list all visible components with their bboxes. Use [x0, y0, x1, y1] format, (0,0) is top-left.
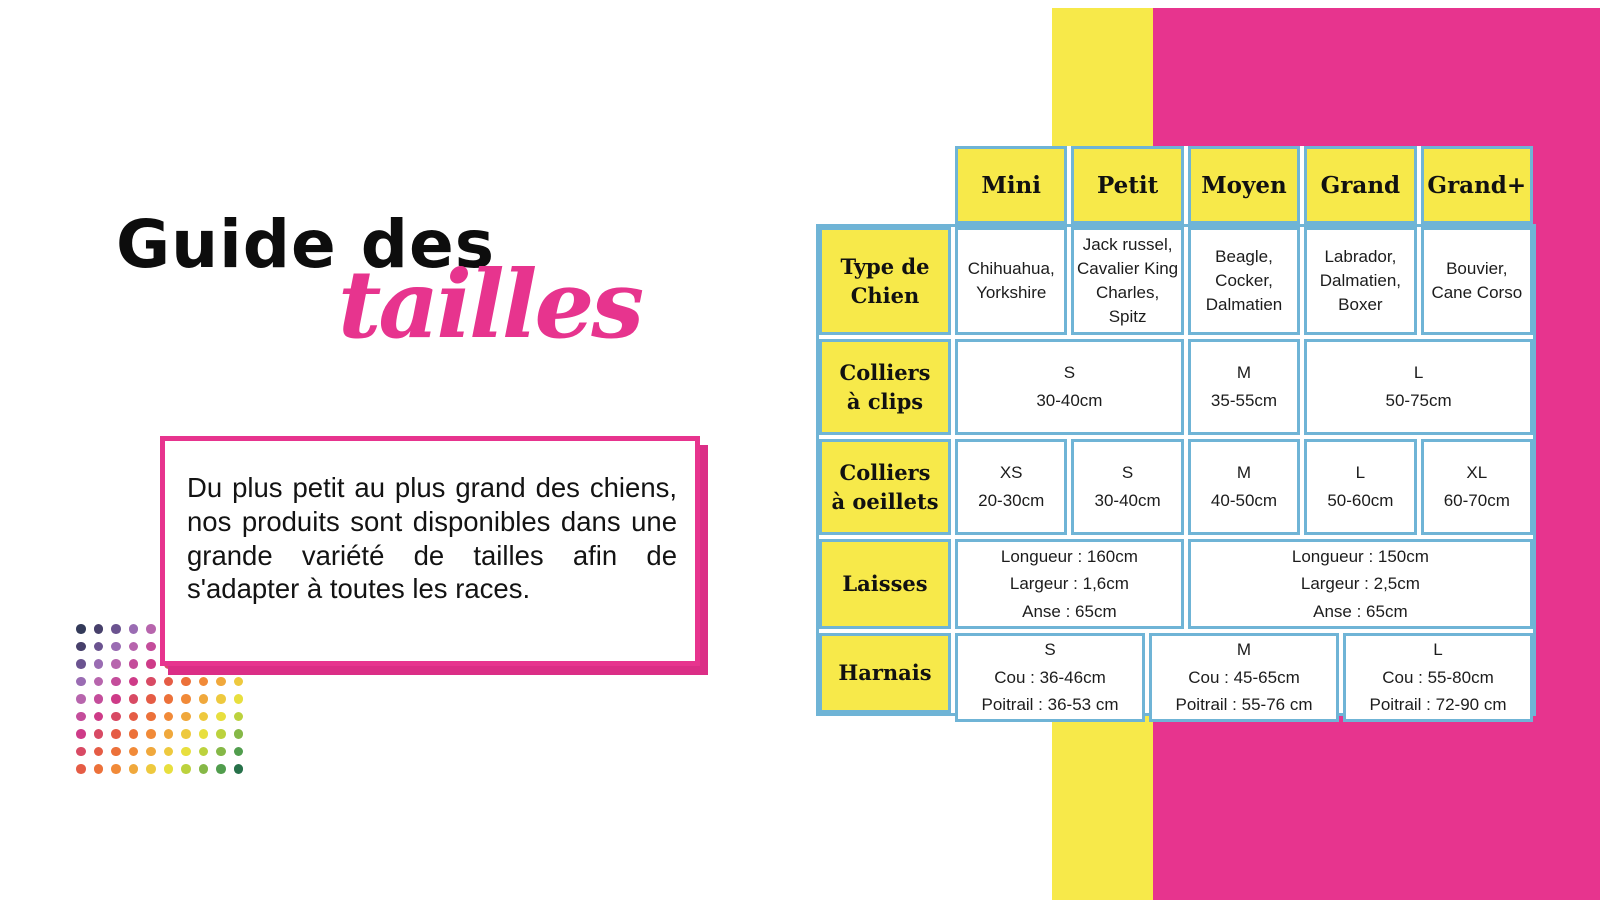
dot — [76, 642, 86, 652]
cell-oeillets-l: L 50-60cm — [1304, 439, 1416, 535]
dot — [111, 642, 121, 652]
row-label-harnais: Harnais — [819, 633, 951, 713]
dot — [234, 694, 244, 704]
dot — [94, 677, 104, 687]
dot — [111, 677, 121, 687]
dot — [76, 764, 86, 774]
dot — [181, 764, 191, 774]
cell-clips-l: L 50-75cm — [1304, 339, 1533, 435]
dot — [129, 729, 139, 739]
col-header-grand-plus: Grand+ — [1421, 146, 1533, 224]
dot — [129, 659, 139, 669]
dot — [76, 729, 86, 739]
dot — [146, 694, 156, 704]
size-guide-page: Guide des tailles Du plus petit au plus … — [0, 0, 1600, 900]
dot — [181, 694, 191, 704]
row-label-laisses: Laisses — [819, 539, 951, 629]
cell-chien-mini: Chihuahua, Yorkshire — [955, 227, 1067, 335]
dot — [111, 694, 121, 704]
dot — [111, 729, 121, 739]
dot — [164, 747, 174, 757]
col-header-petit: Petit — [1071, 146, 1183, 224]
dot — [146, 642, 156, 652]
dot — [94, 624, 104, 634]
cell-chien-grand: Labrador, Dalmatien, Boxer — [1304, 227, 1416, 335]
cell-chien-grand-plus: Bouvier, Cane Corso — [1421, 227, 1533, 335]
dot — [164, 694, 174, 704]
dot — [146, 677, 156, 687]
cell-clips-m: M 35-55cm — [1188, 339, 1300, 435]
dot — [216, 729, 226, 739]
dot — [199, 712, 209, 722]
dot — [76, 712, 86, 722]
col-header-mini: Mini — [955, 146, 1067, 224]
dot — [94, 694, 104, 704]
cell-laisses-petites-tailles: Longueur : 160cm Largeur : 1,6cm Anse : … — [955, 539, 1184, 629]
dot — [111, 712, 121, 722]
dot — [234, 747, 244, 757]
cell-oeillets-s: S 30-40cm — [1071, 439, 1183, 535]
dot — [146, 659, 156, 669]
dot — [164, 764, 174, 774]
dot — [181, 729, 191, 739]
dot — [216, 712, 226, 722]
cell-chien-petit: Jack russel, Cavalier King Charles, Spit… — [1071, 227, 1183, 335]
dot — [111, 747, 121, 757]
cell-harnais-s: S Cou : 36-46cm Poitrail : 36-53 cm — [955, 633, 1145, 722]
dot — [76, 677, 86, 687]
dot — [129, 712, 139, 722]
dot — [94, 659, 104, 669]
col-header-moyen: Moyen — [1188, 146, 1300, 224]
dot — [146, 764, 156, 774]
description-box: Du plus petit au plus grand des chiens, … — [160, 436, 700, 666]
dot — [199, 677, 209, 687]
dot — [129, 677, 139, 687]
size-table-body: Type de Chien Chihuahua, Yorkshire Jack … — [816, 224, 1536, 716]
dot — [216, 677, 226, 687]
dot — [164, 712, 174, 722]
dot — [94, 747, 104, 757]
dot — [216, 764, 226, 774]
dot — [111, 659, 121, 669]
dot — [129, 747, 139, 757]
dot — [129, 642, 139, 652]
dot — [111, 624, 121, 634]
cell-harnais-l: L Cou : 55-80cm Poitrail : 72-90 cm — [1343, 633, 1533, 722]
cell-oeillets-xs: XS 20-30cm — [955, 439, 1067, 535]
dot — [146, 729, 156, 739]
cell-clips-s: S 30-40cm — [955, 339, 1184, 435]
dot — [199, 729, 209, 739]
col-header-grand: Grand — [1304, 146, 1416, 224]
dot — [234, 712, 244, 722]
dot — [111, 764, 121, 774]
dot — [129, 764, 139, 774]
dot — [234, 677, 244, 687]
dot — [234, 764, 244, 774]
size-table-header: Mini Petit Moyen Grand Grand+ — [955, 146, 1533, 224]
dot — [146, 747, 156, 757]
cell-harnais-m: M Cou : 45-65cm Poitrail : 55-76 cm — [1149, 633, 1339, 722]
dot — [181, 677, 191, 687]
dot — [76, 747, 86, 757]
dot — [199, 747, 209, 757]
row-label-type-de-chien: Type de Chien — [819, 227, 951, 335]
dot — [94, 712, 104, 722]
dot — [94, 729, 104, 739]
dot — [94, 764, 104, 774]
dot — [181, 747, 191, 757]
dot — [146, 624, 156, 634]
cell-oeillets-m: M 40-50cm — [1188, 439, 1300, 535]
dot — [181, 712, 191, 722]
row-label-colliers-a-clips: Colliers à clips — [819, 339, 951, 435]
dot — [216, 694, 226, 704]
dot — [76, 624, 86, 634]
page-title-pink: tailles — [338, 258, 641, 352]
cell-oeillets-xl: XL 60-70cm — [1421, 439, 1533, 535]
dot — [94, 642, 104, 652]
dot — [164, 729, 174, 739]
dot — [199, 764, 209, 774]
dot — [234, 729, 244, 739]
description-text: Du plus petit au plus grand des chiens, … — [165, 441, 695, 606]
dot — [216, 747, 226, 757]
dot — [129, 624, 139, 634]
dot — [76, 659, 86, 669]
row-label-colliers-a-oeillets: Colliers à oeillets — [819, 439, 951, 535]
cell-laisses-grandes-tailles: Longueur : 150cm Largeur : 2,5cm Anse : … — [1188, 539, 1533, 629]
cell-chien-moyen: Beagle, Cocker, Dalmatien — [1188, 227, 1300, 335]
dot — [146, 712, 156, 722]
dot — [164, 677, 174, 687]
harnais-cells: S Cou : 36-46cm Poitrail : 36-53 cm M Co… — [955, 633, 1533, 713]
dot — [129, 694, 139, 704]
dot — [76, 694, 86, 704]
dot — [199, 694, 209, 704]
